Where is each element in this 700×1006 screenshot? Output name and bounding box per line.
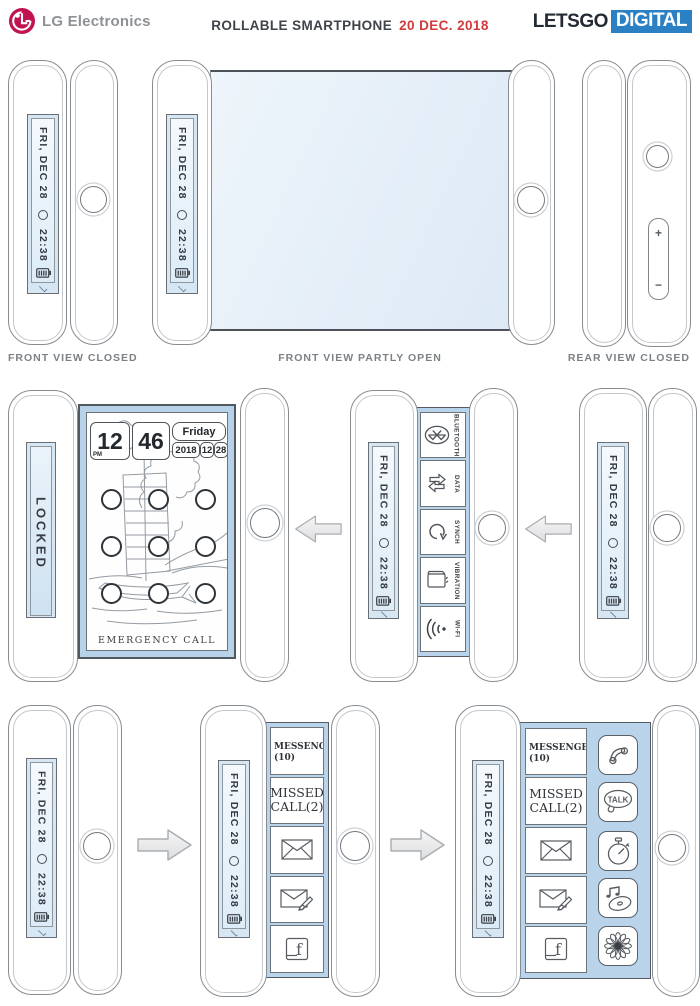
pattern-dot[interactable] [101,536,122,557]
side-button[interactable] [517,186,545,214]
month-value: 12 [202,445,213,456]
pattern-dot[interactable] [148,583,169,604]
battery-icon [227,914,242,924]
status-circle-icon [379,538,389,548]
mail-icon [540,840,572,861]
day-value: 28 [216,445,227,456]
edge-ticker-display: FRI, DEC 28 22:38 [166,114,198,294]
messenger-count: (10) [526,753,550,764]
lg-logo-icon [8,7,36,35]
side-button[interactable] [658,834,686,862]
letsgo-text: LETSGO [533,11,608,33]
app-music[interactable] [598,878,638,918]
missed-call-label: MISSED [270,786,324,800]
phone-icon [605,742,631,768]
caption-rear-view-closed: REAR VIEW CLOSED [568,352,690,364]
compose-mail-icon [539,889,573,911]
status-circle-icon [483,856,493,866]
volume-rocker[interactable]: + − [648,218,669,300]
locked-label: LOCKED [34,497,49,570]
side-button[interactable] [80,186,107,213]
data-icon [426,473,448,495]
brand-name: LG Electronics [42,13,151,30]
year-box: 2018 [172,442,200,458]
battery-icon [606,596,621,606]
tile-label: BLUETOOTH [452,414,459,457]
pattern-dot[interactable] [195,489,216,510]
app-gallery[interactable] [598,926,638,966]
tile-label: DATA [453,475,460,493]
messenger-count: (10) [271,752,295,763]
device-right-segment [627,60,691,347]
edge-ticker-display: FRI, DEC 28 22:38 [218,760,250,938]
tile-vibration[interactable]: VIBRATION [420,557,466,603]
app-phone[interactable] [598,735,638,775]
ticker-date: FRI, DEC 28 [228,773,240,846]
rolled-out-display [210,70,512,331]
notifications-stack: MESSENGER (10) MISSED CALL(2) [525,728,587,973]
app-stopwatch[interactable] [598,831,638,871]
edge-ticker-display: FRI, DEC 28 22:38 [472,760,504,938]
pattern-dot[interactable] [148,536,169,557]
title-date: 20 DEC. 2018 [399,18,489,33]
ticker-time: 22:38 [36,873,48,906]
volume-up-label[interactable]: + [655,227,662,239]
volume-down-label[interactable]: − [655,279,662,291]
minute-value: 46 [138,428,164,455]
missed-call-count: CALL(2) [530,801,583,815]
stopwatch-icon [605,837,632,866]
weekday-box: Friday [172,422,226,441]
bluetooth-icon [424,425,450,445]
hour-value: 12 [97,428,123,455]
status-circle-icon [38,210,48,220]
notification-mail[interactable] [270,826,324,874]
talk-icon: TALK [602,788,634,816]
sync-icon [426,521,448,543]
tile-label: SYNCH [453,520,460,544]
caption-front-view-partly-open: FRONT VIEW PARTLY OPEN [250,352,470,364]
chevron-down-icon [380,611,387,618]
notifications-apps-panel: MESSENGER (10) MISSED CALL(2) [519,722,651,979]
arrow-left-icon [524,512,572,546]
side-button[interactable] [83,832,111,860]
ticker-date: FRI, DEC 28 [378,455,390,528]
notification-missed-call[interactable]: MISSED CALL(2) [525,777,587,824]
ticker-date: FRI, DEC 28 [482,773,494,846]
arrow-left-icon [294,512,342,546]
lock-screen: 12 PM 46 Friday 2018 12 28 [78,404,236,659]
tile-sync[interactable]: SYNCH [420,509,466,555]
ticker-date: FRI, DEC 28 [36,771,48,844]
compose-mail-icon [280,889,314,911]
chevron-down-icon [230,929,237,936]
chevron-down-icon [178,283,187,292]
letsgo-digital-logo: LETSGO DIGITAL [533,10,692,33]
ticker-time: 22:38 [607,557,619,590]
ticker-time: 22:38 [378,557,390,590]
page-title: ROLLABLE SMARTPHONE20 DEC. 2018 [211,18,488,33]
pattern-dot[interactable] [101,489,122,510]
side-button[interactable] [250,508,280,538]
vibration-icon [425,569,449,591]
facebook-icon: f [285,937,309,961]
side-button[interactable] [653,514,681,542]
locked-ticker: LOCKED [26,442,56,618]
status-circle-icon [229,856,239,866]
ticker-time: 22:38 [228,875,240,908]
status-circle-icon [177,210,187,220]
tile-data[interactable]: DATA [420,460,466,506]
status-circle-icon [608,538,618,548]
caption-front-view-closed: FRONT VIEW CLOSED [8,352,138,364]
notification-missed-call[interactable]: MISSED CALL(2) [270,777,324,825]
notifications-panel: MESSENGER (10) MISSED CALL(2) [265,722,329,978]
mail-icon [281,839,313,860]
battery-icon [376,596,391,606]
ticker-time: 22:38 [37,229,49,262]
tile-bluetooth[interactable]: BLUETOOTH [420,412,466,458]
notification-compose-mail[interactable] [525,876,587,923]
quick-settings-panel: BLUETOOTH DATA SYNCH [415,407,471,657]
title-text: ROLLABLE SMARTPHONE [211,18,392,33]
page: LG Electronics ROLLABLE SMARTPHONE20 DEC… [0,0,700,1006]
tile-wifi[interactable]: WI-FI [420,606,466,652]
ticker-date: FRI, DEC 28 [607,455,619,528]
flip-clock-minute: 46 [132,422,170,460]
missed-call-count: CALL(2) [271,800,324,814]
chevron-down-icon [39,283,48,292]
ticker-date: FRI, DEC 28 [37,127,49,200]
lg-brand: LG Electronics [8,7,151,35]
battery-icon [481,914,496,924]
battery-icon [34,912,49,922]
messenger-label: MESSENGER [271,738,324,752]
missed-call-label: MISSED [529,787,583,801]
pattern-dot[interactable] [148,489,169,510]
wifi-icon [426,617,448,641]
weekday-value: Friday [182,426,215,438]
notification-messenger[interactable]: MESSENGER (10) [525,728,587,775]
notification-mail[interactable] [525,827,587,874]
facebook-icon: f [544,937,568,961]
edge-ticker-display: FRI, DEC 28 22:38 [597,442,629,619]
notification-facebook[interactable]: f [270,925,324,973]
chevron-down-icon [37,927,46,936]
battery-icon [175,268,190,278]
svg-text:f: f [296,940,303,959]
app-talk[interactable]: TALK [598,782,638,822]
chevron-down-icon [484,929,491,936]
messenger-label: MESSENGER [526,739,587,753]
flip-clock-hour: 12 PM [90,422,130,460]
camera-lens [646,145,669,168]
month-box: 12 [200,442,214,458]
pattern-dot[interactable] [101,583,122,604]
music-icon [603,884,633,912]
edge-ticker-display: FRI, DEC 28 22:38 [27,114,59,294]
edge-ticker-display: FRI, DEC 28 22:38 [26,758,57,938]
chevron-down-icon [610,611,617,618]
talk-label: TALK [608,796,629,805]
flower-icon [604,932,632,960]
emergency-call-button[interactable]: EMERGENCY CALL [87,635,227,646]
day-box: 28 [214,442,228,458]
tile-label: WI-FI [454,620,461,637]
status-circle-icon [37,854,47,864]
ticker-time: 22:38 [176,229,188,262]
ticker-time: 22:38 [482,875,494,908]
digital-text: DIGITAL [611,10,692,33]
svg-text:f: f [555,940,562,959]
year-value: 2018 [175,445,196,456]
notification-compose-mail[interactable] [270,876,324,924]
pattern-dot[interactable] [195,583,216,604]
arrow-right-icon [136,828,194,862]
arrow-right-icon [390,828,446,862]
meridiem-label: PM [93,452,102,458]
edge-ticker-display: FRI, DEC 28 22:38 [368,442,399,619]
device-left-segment [582,60,626,347]
notification-messenger[interactable]: MESSENGER (10) [270,727,324,775]
side-button[interactable] [340,831,370,861]
battery-icon [36,268,51,278]
ticker-date: FRI, DEC 28 [176,127,188,200]
tile-label: VIBRATION [453,562,460,600]
pattern-dot[interactable] [195,536,216,557]
notification-facebook[interactable]: f [525,926,587,973]
side-button[interactable] [478,514,506,542]
